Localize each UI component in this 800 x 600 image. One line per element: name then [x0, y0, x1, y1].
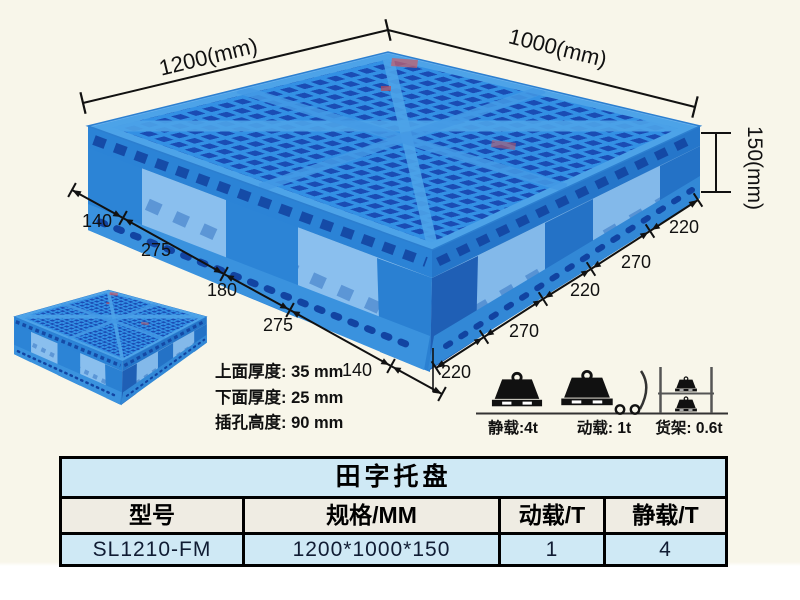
dim-left-seg-2: 180 — [207, 280, 237, 300]
rack-weight-icon — [675, 397, 697, 411]
rack-load-label: 货架: 0.6t — [655, 418, 722, 437]
dim-right-seg-0: 220 — [441, 362, 471, 382]
dim-left-seg-0: 140 — [82, 211, 112, 231]
column-header-model: 型号 — [62, 499, 242, 532]
static-load-icon — [492, 373, 542, 406]
dimension-label-width: 1000(mm) — [506, 23, 609, 72]
small-pallet-thumbnail — [14, 290, 207, 405]
column-header-static-load: 静载/T — [603, 499, 725, 532]
thickness-note-top: 上面厚度: 35 mm — [215, 361, 343, 381]
dim-right-seg-2: 220 — [570, 280, 600, 300]
cell-spec: 1200*1000*150 — [242, 535, 498, 564]
cell-dynamic-load: 1 — [498, 535, 603, 564]
dynamic-load-icon — [561, 371, 612, 405]
rack-weight-icon — [675, 377, 697, 391]
deck-label-patch — [381, 86, 391, 91]
cell-model: SL1210-FM — [62, 535, 242, 564]
load-rating-icons: 静载:4t 动载: 1t 货架: 0.6t — [476, 367, 728, 437]
static-load-label: 静载:4t — [488, 418, 538, 437]
dim-left-seg-3: 275 — [263, 315, 293, 335]
hand-truck-handle-icon — [640, 371, 646, 409]
dim-right-seg-4: 220 — [669, 217, 699, 237]
cell-static-load: 4 — [603, 535, 725, 564]
spec-table-header-row: 型号 规格/MM 动载/T 静载/T — [62, 496, 725, 532]
spec-table-title: 田字托盘 — [62, 459, 725, 496]
thickness-note-bottom: 下面厚度: 25 mm — [215, 387, 343, 407]
product-illustration: 1200(mm) 1000(mm) 150(mm) 140 275 180 27… — [0, 0, 800, 455]
hand-truck-wheel-icon — [631, 405, 639, 413]
dynamic-load-label: 动载: 1t — [577, 419, 631, 437]
column-header-spec: 规格/MM — [242, 499, 498, 532]
hand-truck-wheel-icon — [616, 405, 624, 413]
dim-left-seg-4: 140 — [342, 360, 372, 380]
column-header-dynamic-load: 动载/T — [498, 499, 603, 532]
dim-left-seg-1: 275 — [141, 240, 171, 260]
thickness-note-fork: 插孔高度: 90 mm — [215, 412, 343, 432]
dimension-label-height: 150(mm) — [743, 126, 766, 210]
dim-right-seg-3: 270 — [621, 252, 651, 272]
spec-table: 田字托盘 型号 规格/MM 动载/T 静载/T SL1210-FM 1200*1… — [59, 456, 728, 567]
dim-right-seg-1: 270 — [509, 321, 539, 341]
spec-table-data-row: SL1210-FM 1200*1000*150 1 4 — [62, 532, 725, 564]
